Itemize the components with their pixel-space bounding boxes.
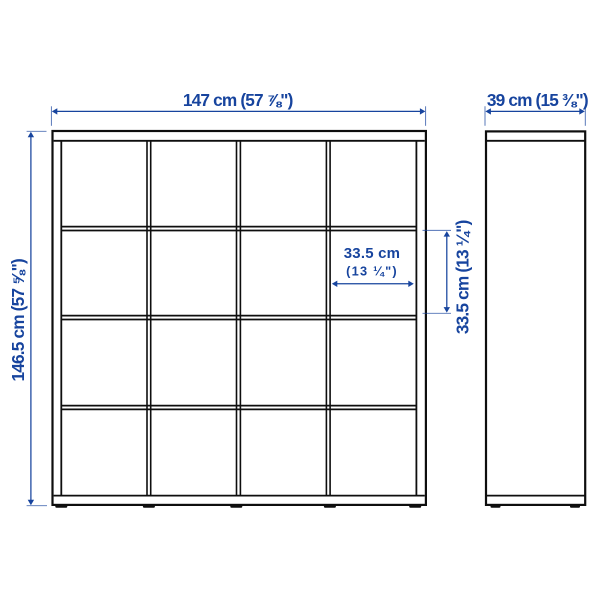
svg-text:39 cm (15 ⅜"): 39 cm (15 ⅜"): [487, 90, 588, 110]
svg-text:147 cm (57 ⅞"): 147 cm (57 ⅞"): [183, 90, 293, 110]
svg-text:33.5 cm (13 ¼"): 33.5 cm (13 ¼"): [452, 220, 472, 334]
svg-text:33.5 cm: 33.5 cm: [344, 245, 400, 262]
svg-text:146.5 cm (57 ⅝"): 146.5 cm (57 ⅝"): [8, 259, 28, 381]
svg-text:(13 ¼"): (13 ¼"): [346, 263, 398, 278]
